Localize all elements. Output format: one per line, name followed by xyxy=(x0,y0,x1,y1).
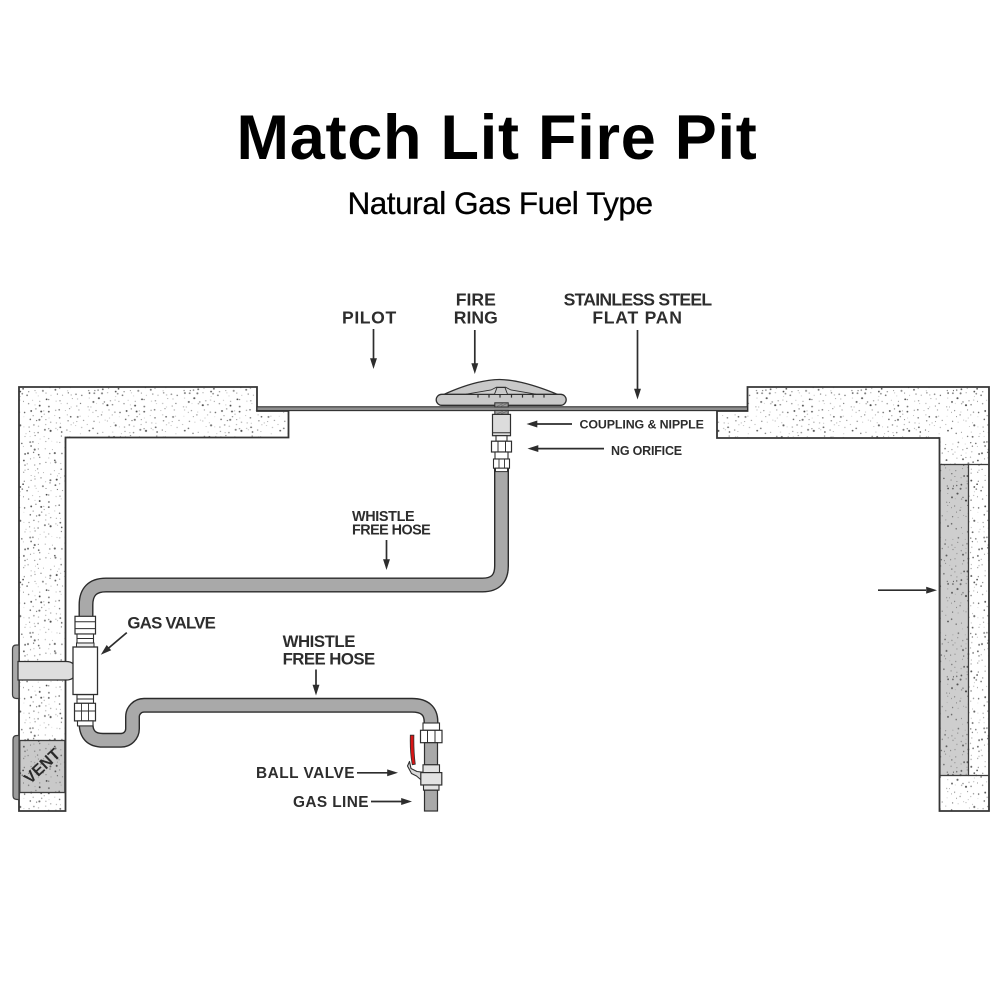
svg-text:WHISTLE: WHISTLE xyxy=(283,632,356,651)
svg-text:Natural Gas Fuel Type: Natural Gas Fuel Type xyxy=(347,185,652,221)
svg-text:GAS LINE: GAS LINE xyxy=(293,794,369,811)
svg-text:FREE HOSE: FREE HOSE xyxy=(283,650,375,669)
svg-text:PILOT: PILOT xyxy=(342,307,397,327)
svg-text:STAINLESS STEEL: STAINLESS STEEL xyxy=(564,290,713,310)
svg-text:COUPLING & NIPPLE: COUPLING & NIPPLE xyxy=(580,417,704,431)
svg-text:GAS VALVE: GAS VALVE xyxy=(127,613,215,632)
svg-text:RING: RING xyxy=(454,308,498,328)
svg-text:FIRE: FIRE xyxy=(456,290,496,310)
svg-text:NG ORIFICE: NG ORIFICE xyxy=(611,444,682,458)
svg-text:FREE HOSE: FREE HOSE xyxy=(352,522,431,538)
svg-text:BALL VALVE: BALL VALVE xyxy=(256,765,355,782)
svg-text:Match Lit Fire Pit: Match Lit Fire Pit xyxy=(236,103,757,173)
svg-text:FLAT PAN: FLAT PAN xyxy=(592,308,682,328)
